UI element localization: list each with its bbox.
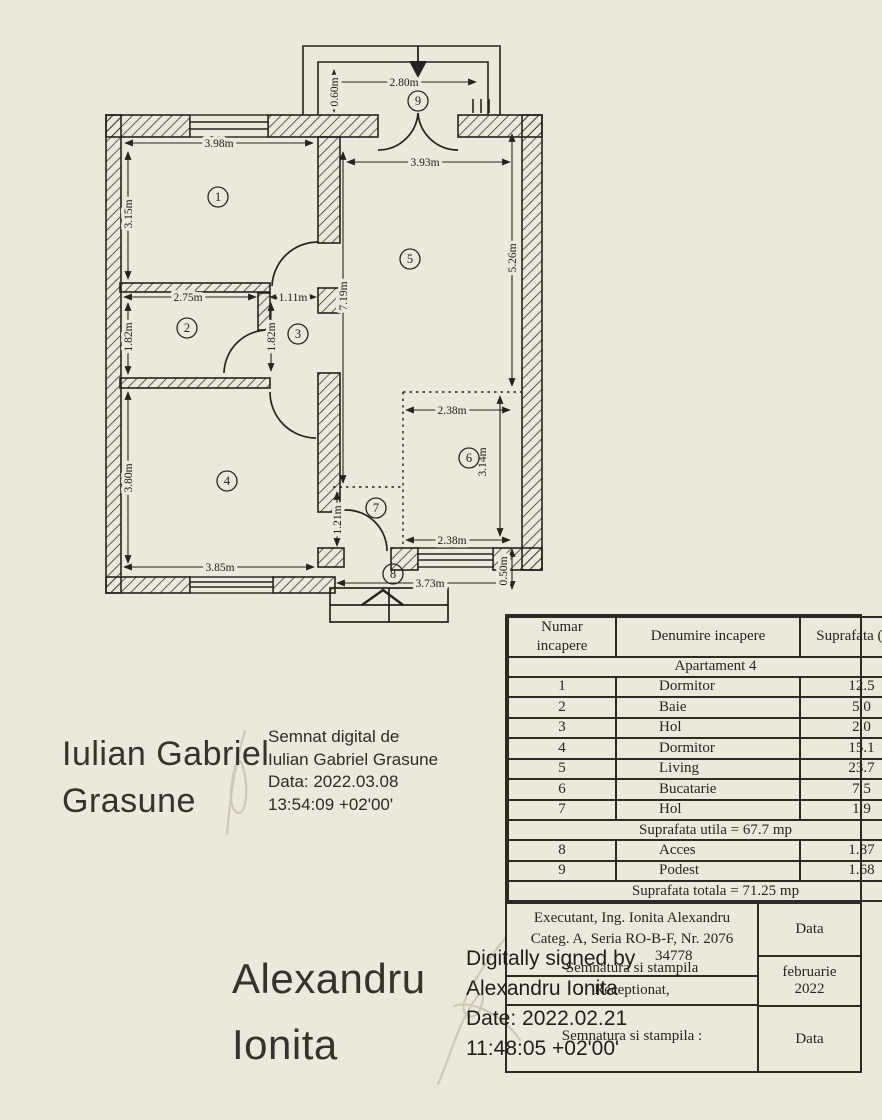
table-row: 2 Baie 5.0 xyxy=(508,697,882,718)
room-number: 9 xyxy=(415,94,421,108)
footer-right-column: Data februarie 2022 Data xyxy=(759,904,860,1071)
cell-number: 7 xyxy=(508,800,616,821)
dim-label: 3.93m xyxy=(410,157,439,169)
cell-room-name: Bucatarie xyxy=(616,779,800,800)
signature-name-line: Grasune xyxy=(62,778,269,825)
cell-number: 5 xyxy=(508,759,616,780)
plan-walls xyxy=(106,115,542,593)
dim-label: 2.38m xyxy=(437,405,466,417)
dim-label: 1.11m xyxy=(279,292,308,304)
cell-number: 2 xyxy=(508,697,616,718)
room-number: 2 xyxy=(184,321,190,335)
table-row: 9 Podest 1.68 xyxy=(508,861,882,882)
table-row: 8 Acces 1.87 xyxy=(508,840,882,861)
table-row: 5 Living 23.7 xyxy=(508,759,882,780)
dim-label: 3.85m xyxy=(205,562,234,574)
signature-name-grasune: Iulian Gabriel Grasune xyxy=(62,731,269,825)
dim-label: 3.15m xyxy=(123,199,135,228)
cell-room-name: Hol xyxy=(616,718,800,739)
dim-label: 3.73m xyxy=(415,578,444,590)
dim-label: 2.80m xyxy=(389,77,418,89)
cell-area: 1.68 xyxy=(800,861,882,882)
cell-area: 23.7 xyxy=(800,759,882,780)
cell-room-name: Podest xyxy=(616,861,800,882)
total-text: Suprafata totala = 71.25 mp xyxy=(508,881,882,901)
stamp-line: Semnat digital de xyxy=(268,726,438,749)
data-label: Data xyxy=(795,921,823,938)
table-header-row: Numar incapere Denumire incapere Suprafa… xyxy=(508,617,882,657)
signature-name-line: Iulian Gabriel xyxy=(62,731,269,778)
room-number: 7 xyxy=(373,501,379,515)
cell-number: 6 xyxy=(508,779,616,800)
room-number: 3 xyxy=(295,327,301,341)
cell-area: 15.1 xyxy=(800,738,882,759)
stamp-line: Alexandru Ionita xyxy=(466,974,635,1004)
room-number: 8 xyxy=(390,567,396,581)
entrance-direction-arrow xyxy=(409,46,427,78)
signature-name-ionita: Alexandru Ionita xyxy=(232,946,426,1078)
cell-number: 1 xyxy=(508,677,616,698)
cell-number: 4 xyxy=(508,738,616,759)
cell-room-name: Acces xyxy=(616,840,800,861)
table-row: 4 Dormitor 15.1 xyxy=(508,738,882,759)
room-number: 4 xyxy=(224,474,231,488)
digital-signature-stamp-ionita: Digitally signed by Alexandru Ionita Dat… xyxy=(466,944,635,1064)
period-cell: februarie 2022 xyxy=(759,957,860,1007)
executant-line1: Executant, Ing. Ionita Alexandru xyxy=(507,910,757,927)
data-label: Data xyxy=(795,1031,823,1048)
dim-label: 0.50m xyxy=(498,556,510,585)
header-suprafata: Suprafata (mp) xyxy=(800,617,882,657)
dim-label: 1.21m xyxy=(332,505,344,534)
cell-area: 2.0 xyxy=(800,718,882,739)
cell-room-name: Hol xyxy=(616,800,800,821)
cell-area: 12.5 xyxy=(800,677,882,698)
section-row: Apartament 4 xyxy=(508,657,882,677)
stamp-line: Iulian Gabriel Grasune xyxy=(268,749,438,772)
stamp-line: 13:54:09 +02'00' xyxy=(268,794,438,817)
digital-signature-stamp-grasune: Semnat digital de Iulian Gabriel Grasune… xyxy=(268,726,438,816)
cell-number: 9 xyxy=(508,861,616,882)
dim-label: 7.19m xyxy=(338,281,350,310)
cell-area: 1.9 xyxy=(800,800,882,821)
scanned-document-page: 3.98m 3.15m 2.75m 1.82m 1.11m 1.82m 3.80… xyxy=(0,0,882,1120)
stamp-line: Date: 2022.02.21 xyxy=(466,1004,635,1034)
stamp-line: 11:48:05 +02'00' xyxy=(466,1034,635,1064)
data-cell-top: Data xyxy=(759,904,860,957)
period-label: februarie 2022 xyxy=(767,964,852,998)
stamp-line: Data: 2022.03.08 xyxy=(268,771,438,794)
room-number: 6 xyxy=(466,451,472,465)
cell-room-name: Baie xyxy=(616,697,800,718)
header-denumire-incapere: Denumire incapere xyxy=(616,617,800,657)
data-cell-bottom: Data xyxy=(759,1007,860,1071)
cell-number: 8 xyxy=(508,840,616,861)
room-number: 1 xyxy=(215,190,221,204)
total-row: Suprafata totala = 71.25 mp xyxy=(508,881,882,901)
cell-area: 1.87 xyxy=(800,840,882,861)
table-row: 7 Hol 1.9 xyxy=(508,800,882,821)
stairs-symbol xyxy=(330,588,448,622)
dim-label: 0.60m xyxy=(329,77,341,106)
table-row: 6 Bucatarie 7.5 xyxy=(508,779,882,800)
room-number: 5 xyxy=(407,252,413,266)
dim-label: 3.80m xyxy=(123,463,135,492)
cell-number: 3 xyxy=(508,718,616,739)
dim-label: 3.98m xyxy=(204,138,233,150)
cell-room-name: Living xyxy=(616,759,800,780)
dotted-partition-lines xyxy=(333,392,522,548)
dim-label: 2.75m xyxy=(173,292,202,304)
cell-area: 5.0 xyxy=(800,697,882,718)
table-row: 3 Hol 2.0 xyxy=(508,718,882,739)
cell-room-name: Dormitor xyxy=(616,738,800,759)
dim-label: 2.38m xyxy=(437,535,466,547)
table-row: 1 Dormitor 12.5 xyxy=(508,677,882,698)
dim-label: 1.82m xyxy=(123,322,135,351)
dim-label: 5.26m xyxy=(507,243,519,272)
subtotal-row: Suprafata utila = 67.7 mp xyxy=(508,820,882,840)
section-title: Apartament 4 xyxy=(508,657,882,677)
header-numar-incapere: Numar incapere xyxy=(508,617,616,657)
subtotal-text: Suprafata utila = 67.7 mp xyxy=(508,820,882,840)
cell-area: 7.5 xyxy=(800,779,882,800)
door-arcs xyxy=(224,113,458,551)
signature-name-line: Alexandru xyxy=(232,946,426,1012)
stamp-line: Digitally signed by xyxy=(466,944,635,974)
cell-room-name: Dormitor xyxy=(616,677,800,698)
dim-label: 1.82m xyxy=(266,322,278,351)
signature-name-line: Ionita xyxy=(232,1012,426,1078)
